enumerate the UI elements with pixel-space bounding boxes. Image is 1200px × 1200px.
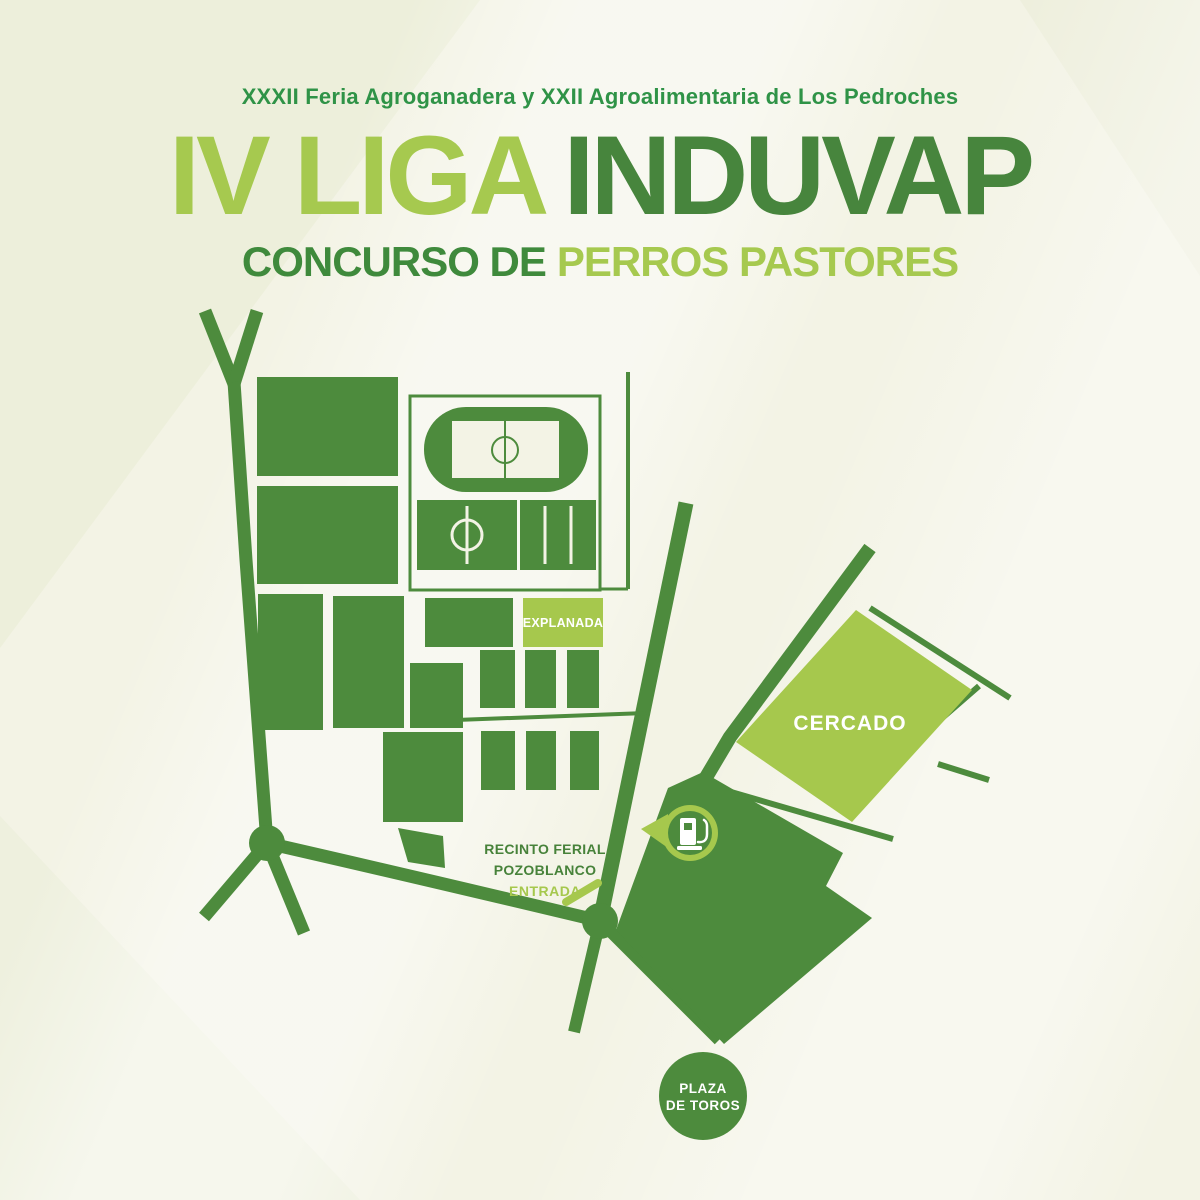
block-g bbox=[398, 828, 445, 868]
block-d bbox=[333, 596, 404, 728]
courts-area bbox=[520, 500, 596, 570]
poster-tagline-dark-part: CONCURSO DE bbox=[242, 238, 546, 285]
block-a bbox=[257, 377, 398, 476]
block-b bbox=[257, 486, 398, 584]
block-row2-3 bbox=[570, 731, 599, 790]
block-e bbox=[410, 663, 463, 728]
block-row1-2 bbox=[525, 650, 556, 708]
block-explanada-west bbox=[425, 598, 513, 647]
poster-title: IV LIGAINDUVAP bbox=[0, 120, 1200, 232]
block-row1-1 bbox=[480, 650, 515, 708]
recinto-ferial-label-line1: RECINTO FERIAL bbox=[484, 841, 606, 857]
poster-tagline-light-part: PERROS PASTORES bbox=[557, 238, 958, 285]
block-row1-3 bbox=[567, 650, 599, 708]
roundabout-east bbox=[582, 903, 618, 939]
fuel-pump-screen bbox=[684, 823, 692, 830]
poster-title-dark-part: INDUVAP bbox=[563, 113, 1031, 238]
block-c bbox=[258, 594, 323, 730]
event-subtitle: XXXII Feria Agroganadera y XXII Agroalim… bbox=[0, 84, 1200, 110]
recinto-ferial-label-line2: POZOBLANCO bbox=[494, 862, 597, 878]
explanada-label: EXPLANADA bbox=[523, 616, 603, 630]
block-f bbox=[383, 732, 463, 822]
fuel-pump-body bbox=[680, 818, 696, 845]
block-row2-2 bbox=[526, 731, 556, 790]
explanada-area: EXPLANADA bbox=[523, 598, 603, 647]
roundabout-west bbox=[249, 825, 285, 861]
plaza-de-toros: PLAZA DE TOROS bbox=[659, 1052, 747, 1140]
cercado-label: CERCADO bbox=[793, 712, 906, 735]
block-row2-1 bbox=[481, 731, 515, 790]
plaza-label-line2: DE TOROS bbox=[666, 1098, 740, 1113]
poster-tagline: CONCURSO DEPERROS PASTORES bbox=[0, 238, 1200, 286]
fuel-pump-base bbox=[677, 846, 702, 850]
road-y-left-arm bbox=[205, 311, 234, 384]
poster-title-light-part: IV LIGA bbox=[169, 113, 545, 238]
sports-complex bbox=[410, 396, 600, 590]
cercado-area: CERCADO bbox=[736, 610, 972, 822]
road-east-stub bbox=[938, 764, 989, 780]
road-row-divider bbox=[456, 713, 646, 720]
plaza-label-line1: PLAZA bbox=[679, 1081, 727, 1096]
road-y-right-arm bbox=[234, 311, 257, 384]
fairground-zone bbox=[616, 772, 872, 1044]
plaza-de-toros-circle bbox=[659, 1052, 747, 1140]
poster-header: XXXII Feria Agroganadera y XXII Agroalim… bbox=[0, 0, 1200, 286]
